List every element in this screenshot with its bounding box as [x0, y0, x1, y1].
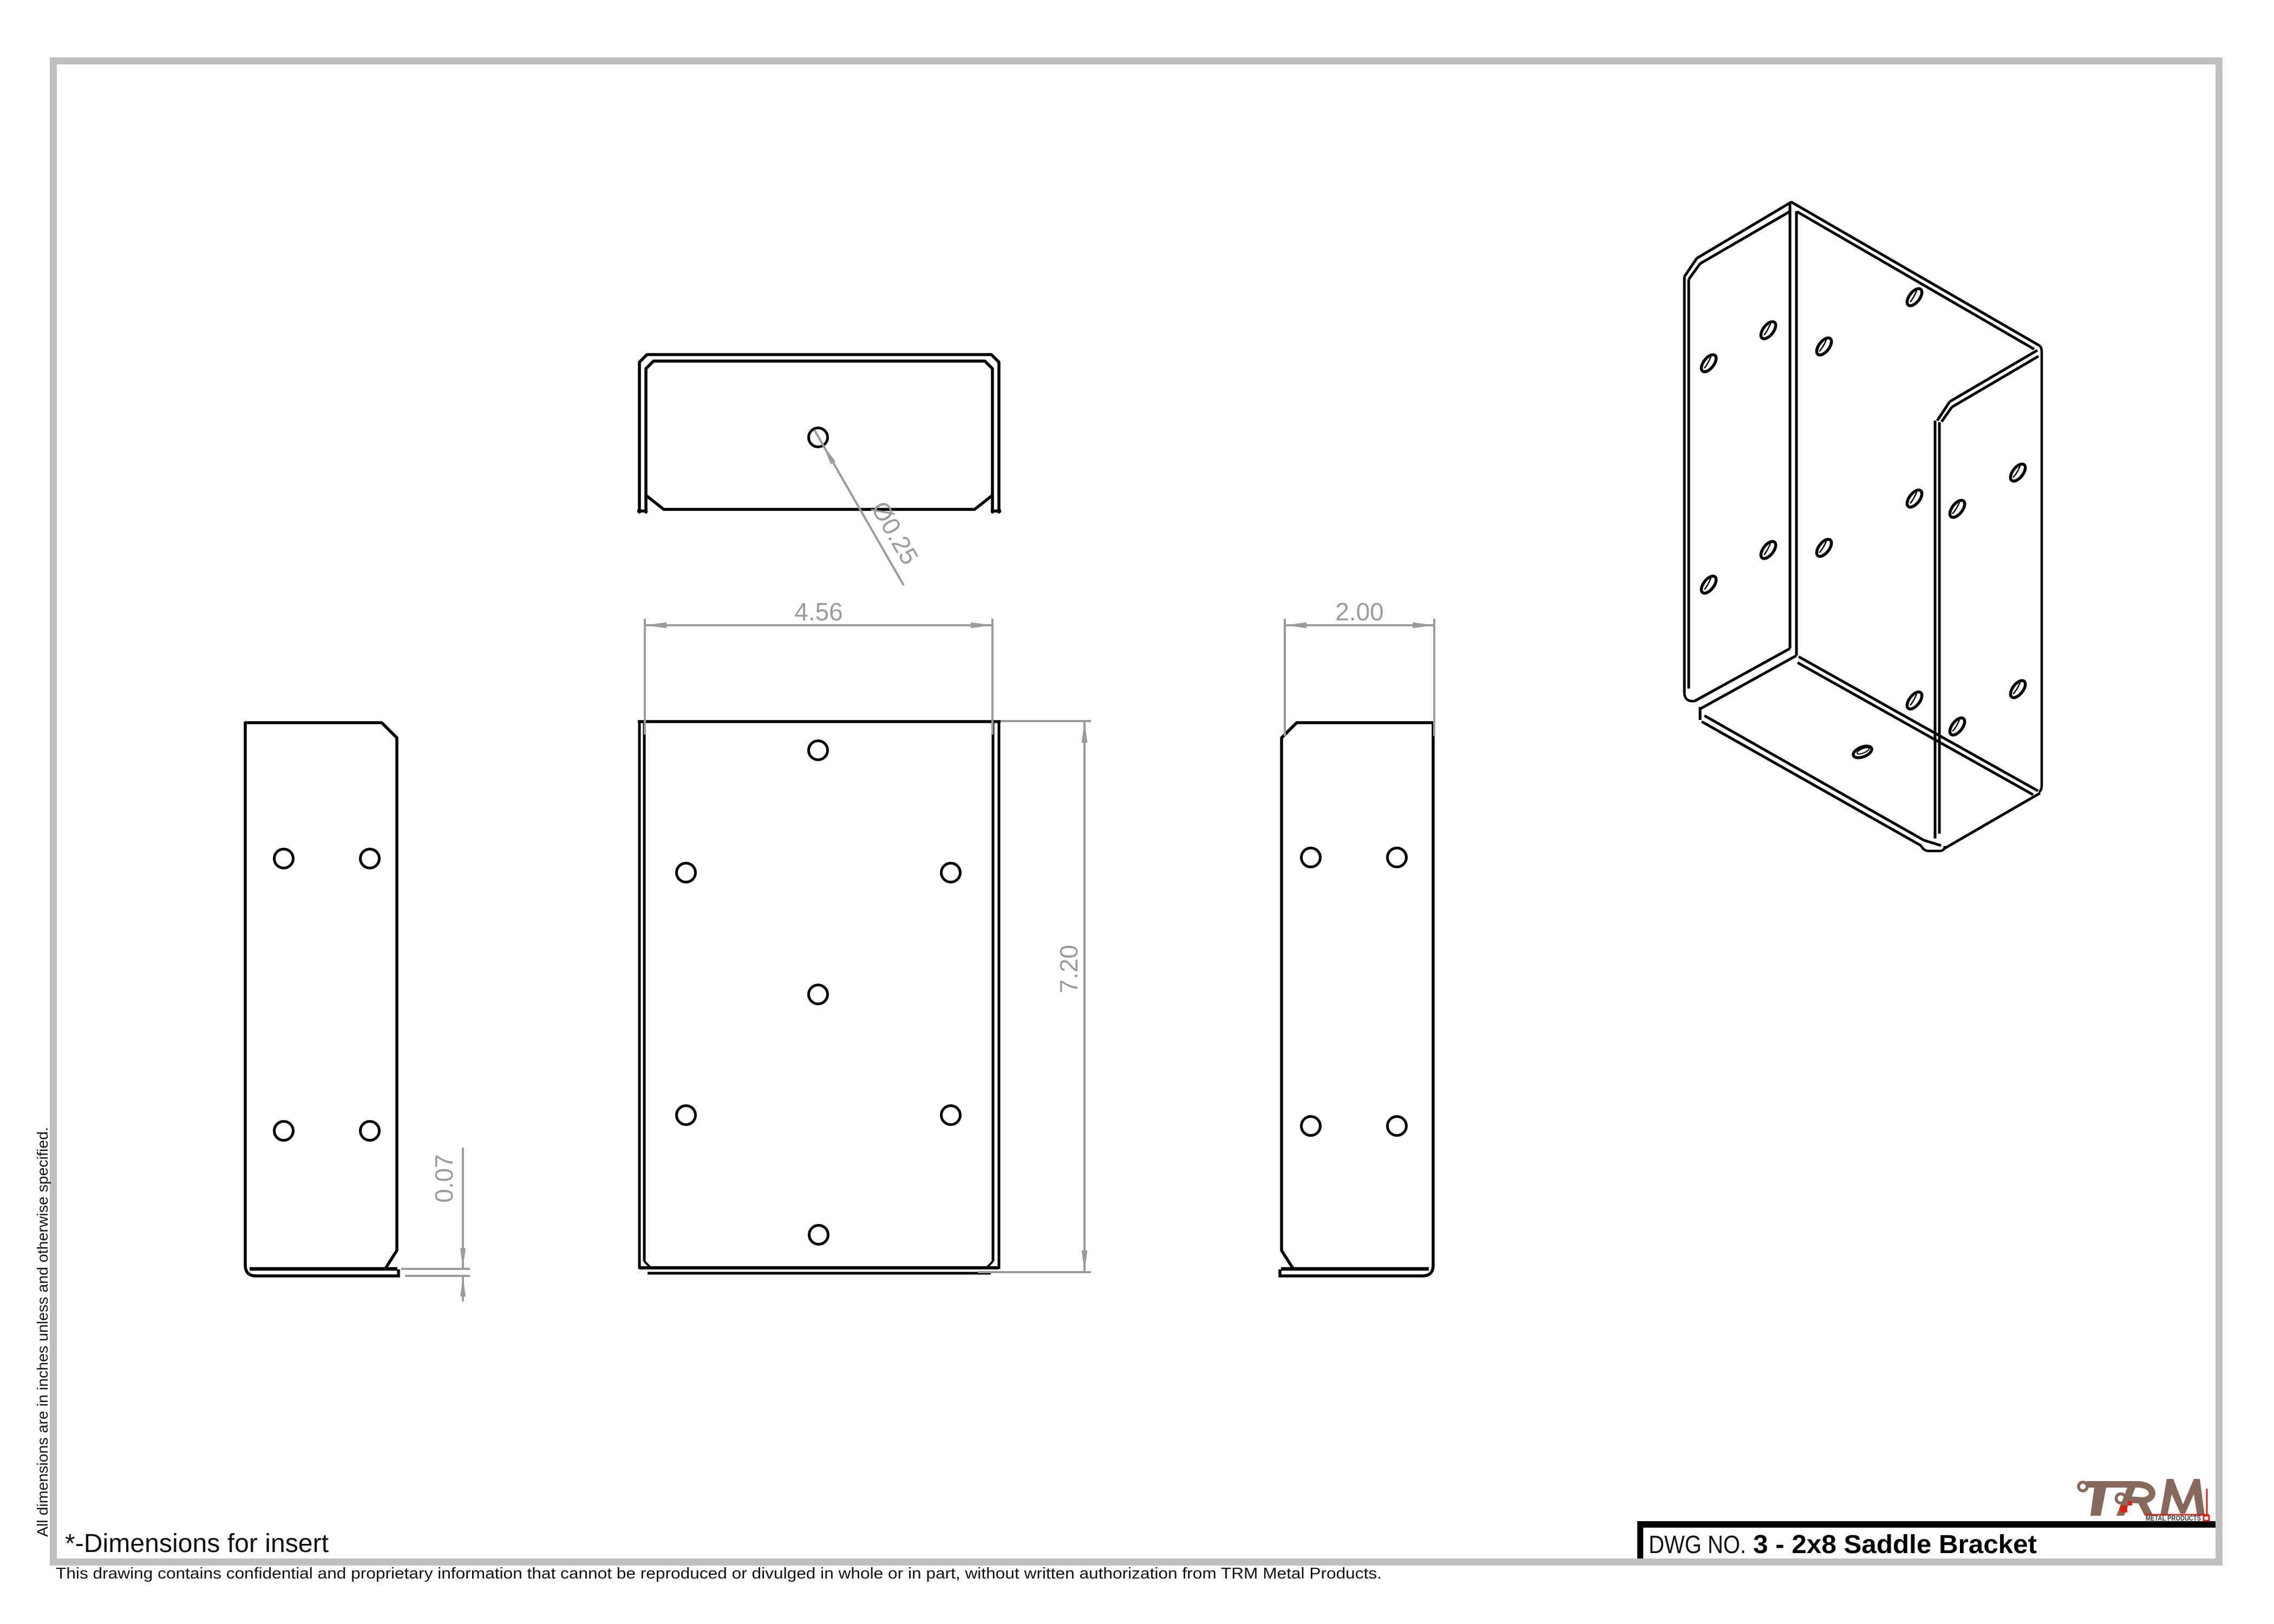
svg-text:METAL PRODUCTS: METAL PRODUCTS	[2146, 1514, 2201, 1522]
svg-text:4.56: 4.56	[794, 598, 843, 626]
svg-text:7.20: 7.20	[1055, 945, 1083, 993]
svg-text:*-Dimensions for insert: *-Dimensions for insert	[65, 1529, 329, 1558]
svg-text:DWG NO.: DWG NO.	[1649, 1530, 1746, 1558]
svg-text:0.07: 0.07	[430, 1154, 458, 1203]
svg-text:2.00: 2.00	[1335, 598, 1384, 626]
svg-text:This drawing contains confiden: This drawing contains confidential and p…	[56, 1565, 1382, 1582]
svg-text:All dimensions are in inches u: All dimensions are in inches unless and …	[34, 1127, 51, 1537]
svg-text:3 - 2x8 Saddle Bracket: 3 - 2x8 Saddle Bracket	[1753, 1530, 2037, 1559]
